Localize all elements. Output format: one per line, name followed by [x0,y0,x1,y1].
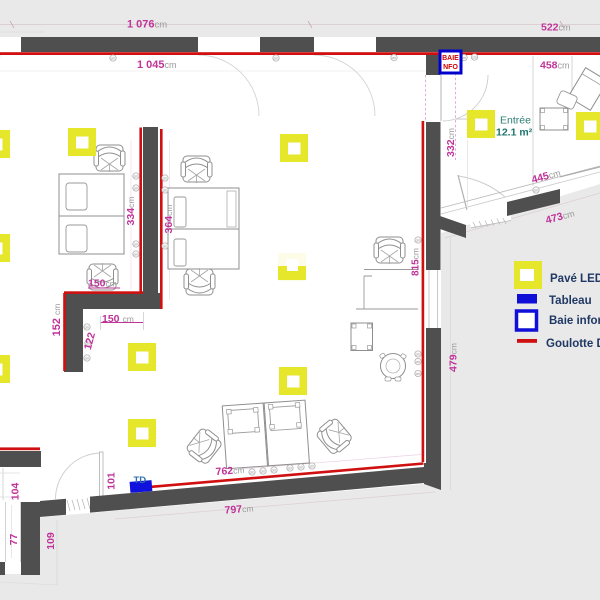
svg-text:Pavé LED: Pavé LED [550,273,600,285]
svg-text:364cm: 364cm [163,205,175,234]
svg-text:77: 77 [8,534,20,546]
svg-text:BAIE: BAIE [442,55,459,62]
svg-text:815cm: 815cm [411,248,422,276]
svg-text:Goulotte DL: Goulotte DL [546,338,600,350]
svg-text:Tableau: Tableau [549,295,592,307]
svg-text:104: 104 [10,483,22,501]
svg-text:NFO: NFO [443,64,458,71]
svg-text:458cm: 458cm [540,60,570,72]
svg-text:Baie informa: Baie informa [549,315,600,327]
svg-text:109: 109 [45,532,57,550]
svg-text:1 045cm: 1 045cm [137,59,177,71]
svg-text:1 076cm: 1 076cm [127,19,167,31]
svg-text:101: 101 [106,472,118,490]
svg-text:Entrée: Entrée [500,115,531,127]
svg-text:332cm: 332cm [445,128,457,157]
svg-text:152 cm: 152 cm [51,304,63,337]
svg-text:479cm: 479cm [448,343,460,372]
svg-text:TD: TD [134,475,147,486]
svg-text:12.1 m²: 12.1 m² [496,127,533,139]
svg-text:150 cm: 150 cm [102,313,134,325]
svg-text:522cm: 522cm [541,22,571,34]
svg-text:334cm: 334cm [125,197,137,226]
